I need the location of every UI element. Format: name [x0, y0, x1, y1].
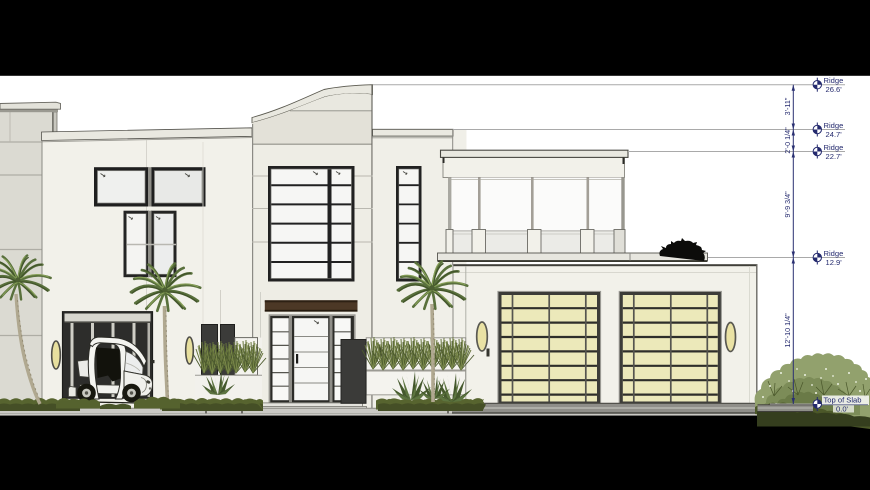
svg-text:Top of Slab: Top of Slab: [824, 395, 862, 404]
svg-text:22.7': 22.7': [826, 152, 843, 161]
svg-text:2'-0 1/4": 2'-0 1/4": [783, 127, 792, 154]
svg-text:12'-10 1/4": 12'-10 1/4": [783, 313, 792, 348]
svg-text:Ridge: Ridge: [824, 121, 844, 130]
svg-text:0.0': 0.0': [836, 405, 849, 414]
svg-text:12.9': 12.9': [826, 258, 843, 267]
svg-text:Ridge: Ridge: [824, 76, 844, 85]
svg-text:9'-9 3/4": 9'-9 3/4": [783, 191, 792, 218]
svg-text:26.6': 26.6': [826, 85, 843, 94]
svg-text:Ridge: Ridge: [824, 143, 844, 152]
svg-text:24.7': 24.7': [826, 130, 843, 139]
svg-text:Ridge: Ridge: [824, 249, 844, 258]
svg-text:3'-11": 3'-11": [783, 97, 792, 115]
